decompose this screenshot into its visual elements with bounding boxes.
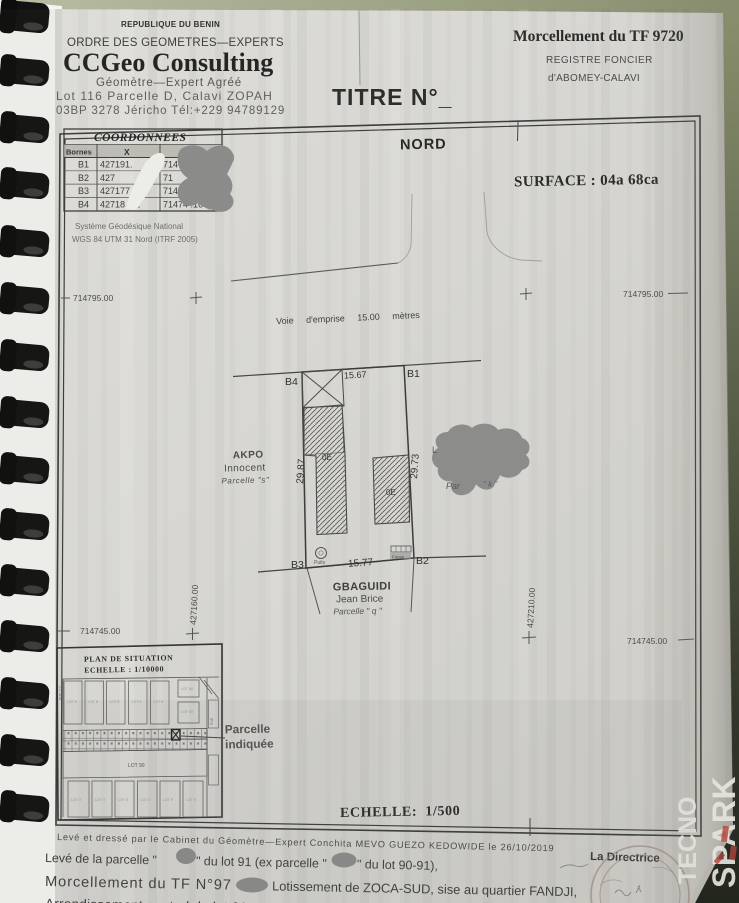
svg-text:TECNO: TECNO [674, 797, 702, 885]
